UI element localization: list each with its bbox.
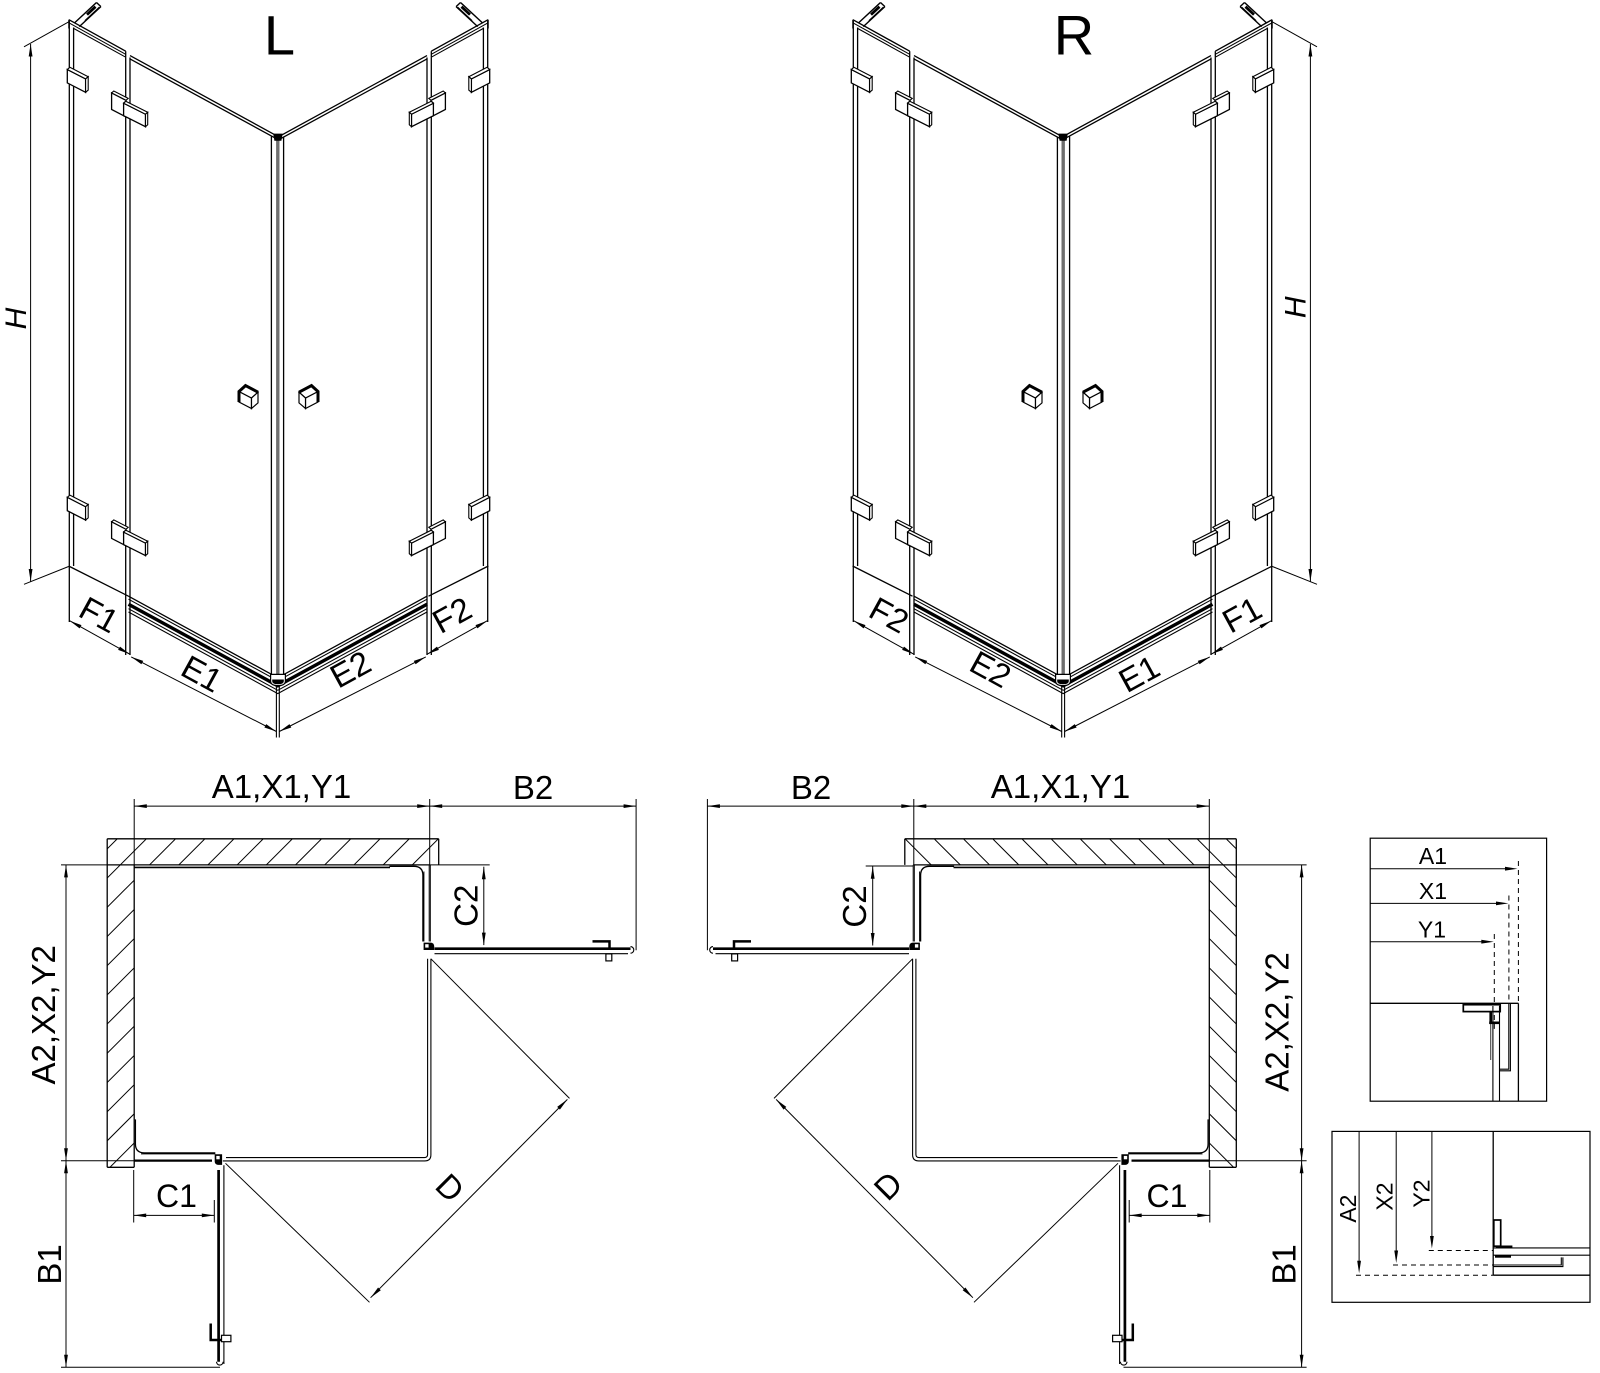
svg-text:X2: X2 [1372, 1182, 1398, 1210]
svg-text:A2: A2 [1335, 1195, 1361, 1223]
svg-text:A1: A1 [1419, 843, 1447, 869]
svg-text:C2: C2 [448, 885, 485, 927]
svg-text:L: L [264, 3, 295, 66]
svg-text:B2: B2 [513, 769, 553, 806]
svg-text:C1: C1 [156, 1178, 197, 1214]
svg-text:H: H [1279, 296, 1312, 318]
svg-text:B1: B1 [1266, 1244, 1303, 1284]
svg-text:H: H [0, 307, 33, 329]
svg-text:X1: X1 [1419, 878, 1447, 904]
svg-text:C2: C2 [836, 885, 873, 927]
svg-text:B2: B2 [791, 769, 831, 806]
svg-text:A1,X1,Y1: A1,X1,Y1 [991, 768, 1130, 805]
svg-text:A2,X2,Y2: A2,X2,Y2 [25, 945, 62, 1084]
svg-text:A1,X1,Y1: A1,X1,Y1 [212, 768, 351, 805]
svg-text:Y2: Y2 [1408, 1179, 1434, 1207]
svg-text:A2,X2,Y2: A2,X2,Y2 [1259, 952, 1296, 1091]
svg-text:R: R [1054, 3, 1094, 66]
svg-text:Y1: Y1 [1418, 917, 1446, 943]
svg-text:C1: C1 [1147, 1178, 1188, 1214]
svg-text:B1: B1 [31, 1244, 68, 1284]
